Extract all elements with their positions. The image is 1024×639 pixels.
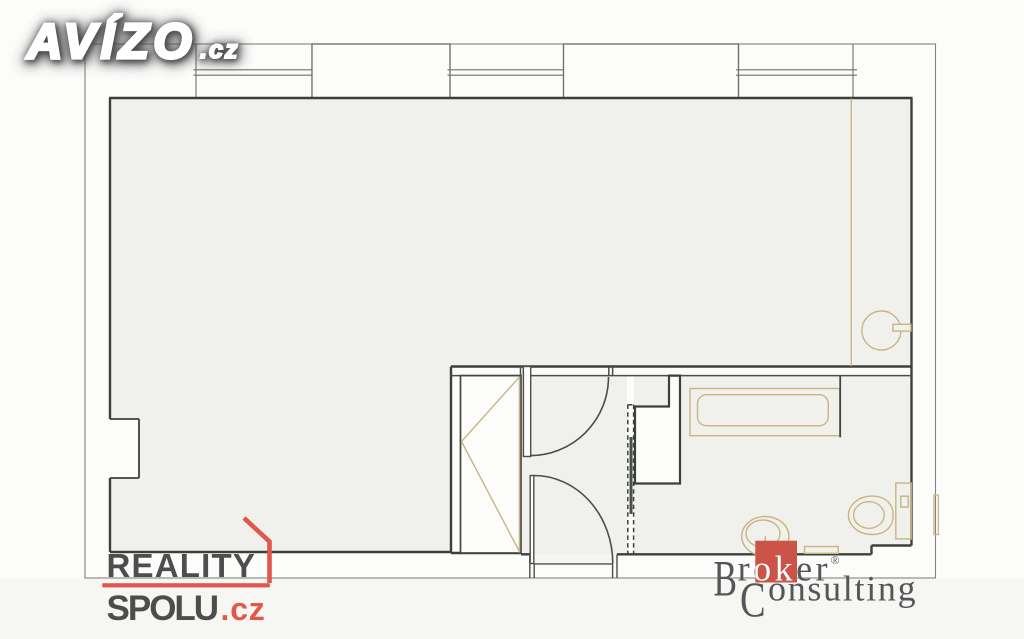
svg-text:SPOLU: SPOLU (107, 589, 218, 628)
svg-text:REALITY: REALITY (107, 547, 257, 584)
svg-text:B: B (714, 551, 737, 607)
svg-text:AVÍZO: AVÍZO (26, 15, 196, 69)
svg-text:.cz: .cz (200, 36, 239, 64)
svg-text:.cz: .cz (221, 591, 266, 627)
svg-text:®: ® (831, 553, 840, 567)
